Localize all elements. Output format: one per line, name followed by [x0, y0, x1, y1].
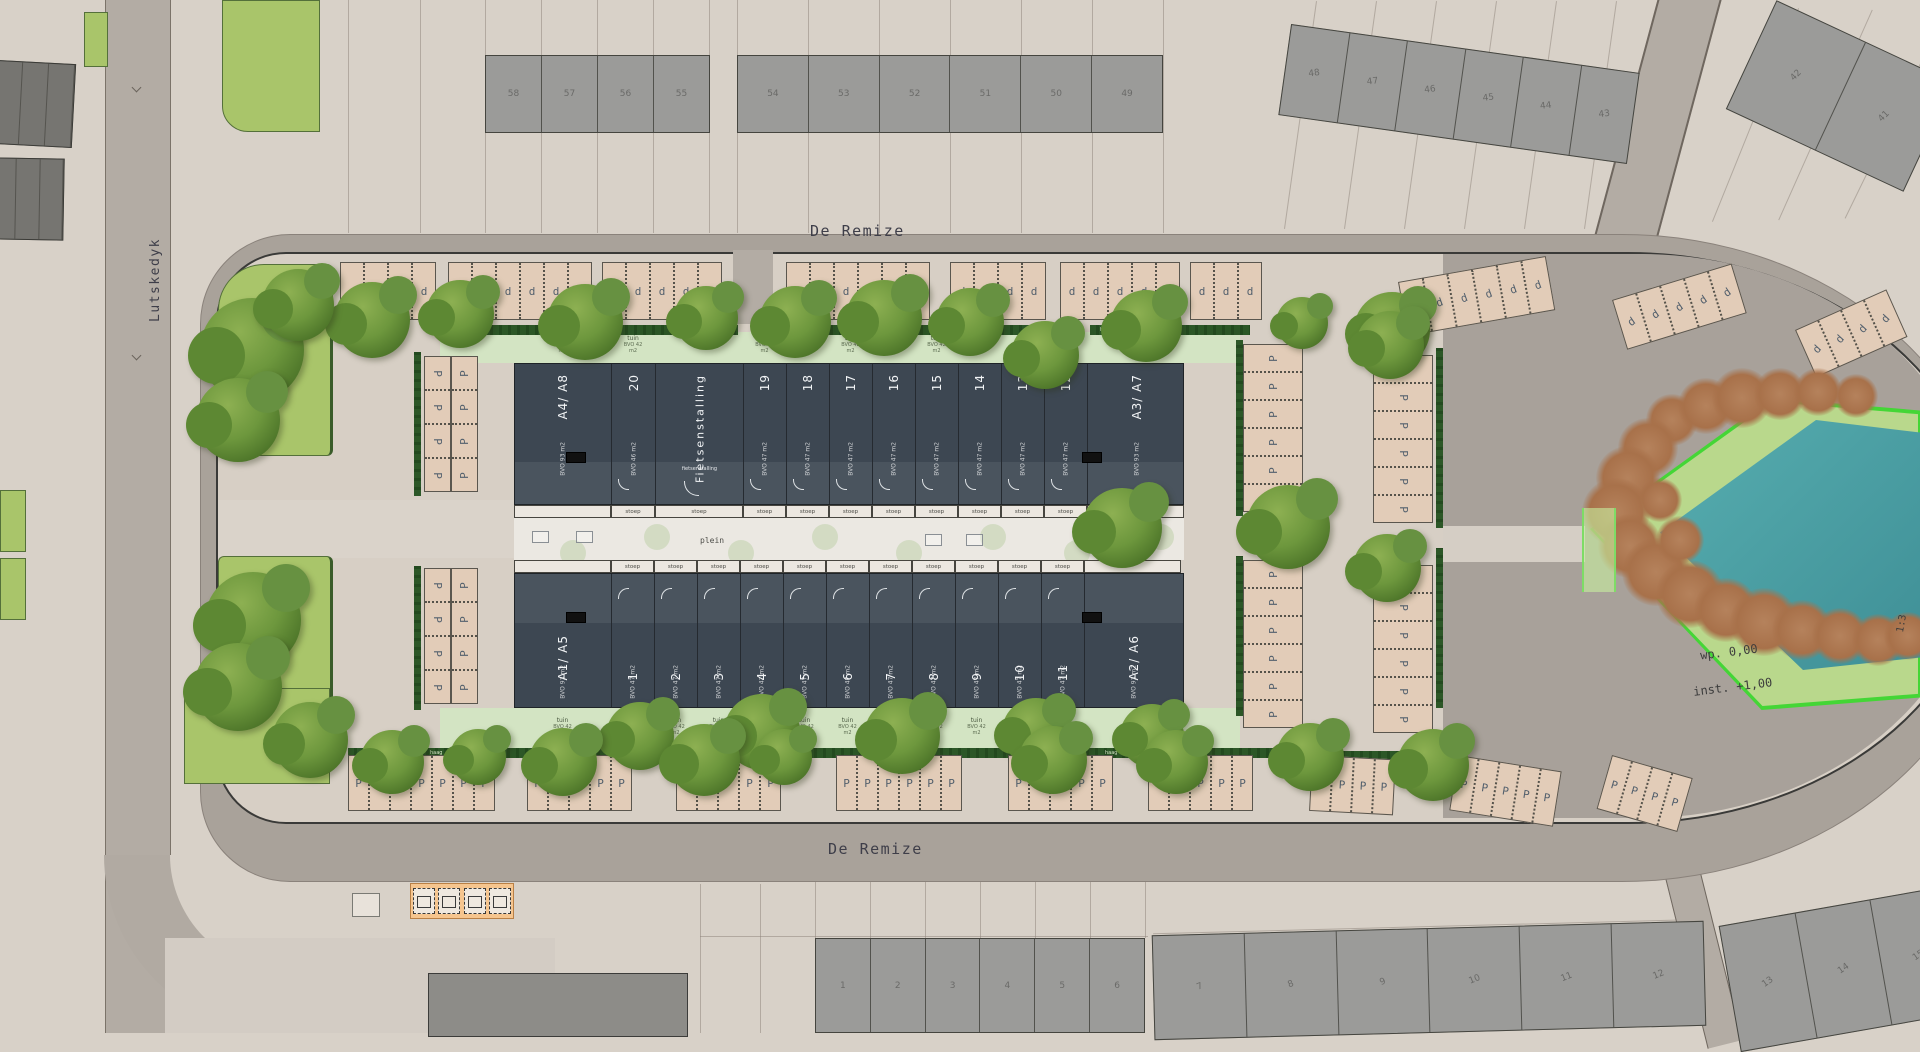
tree-icon [194, 643, 282, 731]
house-cell: 51 [950, 56, 1021, 132]
unit-area-label: BVO 47 m2 [1017, 665, 1024, 699]
house-block: 789101112 [1152, 921, 1707, 1040]
parking-stall: P [452, 391, 477, 425]
unit-area-label: BVO 47 m2 [891, 442, 898, 476]
parking-letter: P [1359, 779, 1366, 792]
stoep-label: stoep [1058, 509, 1073, 515]
building-unit: A1/ A5BVO 93 m2 [515, 574, 612, 707]
building-unit: 18BVO 47 m2 [787, 364, 830, 504]
stoep-label: stoep [754, 564, 769, 570]
stoep-label: stoep [1015, 509, 1030, 515]
container-icon [489, 888, 511, 914]
door-icon [1051, 479, 1062, 490]
door-icon [876, 588, 887, 599]
parking-stall: P [1233, 756, 1252, 810]
stoep-strip: stoepstoepstoepstoepstoepstoepstoepstoep… [514, 560, 1184, 573]
parking-letter: P [1397, 478, 1410, 485]
parking-letter: P [1267, 683, 1280, 690]
picnic-table-icon [532, 531, 549, 543]
house-number: 13 [1760, 975, 1775, 990]
tree-icon [1082, 488, 1162, 568]
parking-letter: P [1397, 688, 1410, 695]
parking-stall: P [452, 459, 477, 491]
unit-area-label: BVO 47 m2 [716, 665, 723, 699]
door-icon [750, 479, 761, 490]
apartment-building: A4/ A8BVO 93 m220BVO 46 m2Fietsenstallin… [514, 363, 1184, 505]
parking-letter: P [431, 650, 444, 657]
tree-icon [1356, 311, 1424, 379]
parking-stall: P [425, 637, 450, 671]
parking-stall: d [1191, 263, 1215, 319]
building-unit: A4/ A8BVO 93 m2 [515, 364, 612, 504]
tree-icon [1144, 730, 1208, 794]
stoep-label: stoep [625, 509, 640, 515]
stoep-label: stoep [757, 509, 772, 515]
bike-storage-small-label: fietsenstalling [682, 466, 717, 472]
parking-group: ddd [1190, 262, 1262, 320]
house-block: 545352515049 [737, 55, 1163, 133]
stoep-cell: stoep [697, 560, 740, 573]
parking-stall: P [1244, 429, 1302, 457]
parking-letter: P [1480, 781, 1489, 795]
tuin-label: tuinBVO 42 m2 [963, 718, 991, 736]
stoep-label: stoep [797, 564, 812, 570]
house-number: 43 [1598, 109, 1611, 120]
house-cell: 55 [654, 56, 709, 132]
parking-letter: P [597, 777, 604, 790]
house-number: 9 [1379, 976, 1388, 987]
tree-icon [846, 280, 922, 356]
parking-letter: P [864, 777, 871, 790]
reed-icon [1834, 374, 1878, 418]
stoep-cell [514, 505, 611, 518]
door-icon [1008, 479, 1019, 490]
parking-letter: P [431, 370, 444, 377]
house-number: 49 [1121, 89, 1132, 99]
green-block-top [222, 0, 320, 132]
picnic-table-icon [925, 534, 942, 546]
stair-icon [1082, 452, 1102, 463]
parking-letter: P [1338, 778, 1345, 791]
parking-letter: P [458, 370, 471, 377]
building-unit: 1BVO 47 m2 [612, 574, 655, 707]
tree-icon [1276, 297, 1328, 349]
parking-stall: P [425, 425, 450, 459]
plot-line [1145, 880, 1146, 938]
door-icon [618, 588, 629, 599]
house-cell: 53 [809, 56, 880, 132]
building-unit: 7BVO 47 m2 [870, 574, 913, 707]
unit-label: 19 [758, 374, 772, 391]
house-cell: 5 [1035, 939, 1090, 1032]
existing-building-south [428, 973, 688, 1037]
parking-letter: d [635, 285, 642, 298]
street-label-bottom: De Remize [828, 840, 923, 858]
door-icon [836, 479, 847, 490]
stoep-cell: stoep [869, 560, 912, 573]
utility-pad [352, 893, 380, 917]
stoep-label: stoep [668, 564, 683, 570]
planter-circle [644, 524, 670, 550]
unit-area-label: BVO 47 m2 [762, 442, 769, 476]
door-icon [962, 588, 973, 599]
tuin-label: tuinBVO 42 m2 [619, 336, 647, 354]
house-block: 58575655 [485, 55, 710, 133]
parking-letter: d [1721, 285, 1734, 299]
tree-icon [1353, 534, 1421, 602]
parking-stall: P [1374, 650, 1432, 678]
stoep-cell: stoep [1001, 505, 1044, 518]
parking-stall: P [452, 425, 477, 459]
unit-area-label: BVO 46 m2 [630, 442, 637, 476]
stoep-label: stoep [840, 564, 855, 570]
unit-label: 20 [627, 374, 641, 391]
house-cell: 54 [738, 56, 809, 132]
parking-stall: P [425, 569, 450, 603]
parking-stall: d [1239, 263, 1261, 319]
house-number: 51 [980, 89, 991, 99]
building-unit: 2BVO 47 m2 [655, 574, 698, 707]
tree-icon [1011, 321, 1079, 389]
parking-letter: d [1117, 285, 1124, 298]
parking-stall: P [1374, 412, 1432, 440]
house-number: 54 [767, 89, 778, 99]
tree-icon [864, 698, 940, 774]
unit-label: 16 [887, 374, 901, 391]
unit-area-label: BVO 93 m2 [1130, 665, 1137, 699]
house-number: 48 [1308, 68, 1321, 79]
house-cell: 8 [1245, 931, 1339, 1036]
stoep-label: stoep [929, 509, 944, 515]
tree-icon [759, 286, 831, 358]
parking-letter: P [431, 438, 444, 445]
house-cell: 58 [486, 56, 542, 132]
building-unit: 9BVO 47 m2 [956, 574, 999, 707]
parking-letter: P [458, 404, 471, 411]
parking-stall: P [1244, 457, 1302, 485]
parking-letter: P [1397, 394, 1410, 401]
stoep-cell: stoep [872, 505, 915, 518]
parking-letter: P [458, 650, 471, 657]
door-icon [793, 479, 804, 490]
parking-letter: d [843, 285, 850, 298]
stoep-label: stoep [625, 564, 640, 570]
building-unit: 19BVO 47 m2 [744, 364, 787, 504]
stoep-label: stoep [843, 509, 858, 515]
stoep-cell: stoep [1041, 560, 1084, 573]
parking-column: PPPP [451, 568, 478, 704]
green-strip [84, 12, 108, 67]
unit-label: A3/ A7 [1130, 374, 1144, 420]
courtyard-label: plein [700, 536, 724, 545]
parking-letter: P [927, 777, 934, 790]
tree-icon [1397, 729, 1469, 801]
tree-icon [547, 284, 623, 360]
house-cell: 10 [1428, 927, 1522, 1032]
unit-area-label: BVO 47 m2 [630, 665, 637, 699]
parking-letter: P [885, 777, 892, 790]
house-number: 56 [620, 89, 631, 99]
parking-letter: P [431, 684, 444, 691]
stoep-label: stoep [972, 509, 987, 515]
parking-letter: d [1069, 285, 1076, 298]
parking-column: PPPP [424, 568, 451, 704]
parking-letter: P [1397, 632, 1410, 639]
unit-area-label: BVO 47 m2 [805, 442, 812, 476]
door-icon [922, 479, 933, 490]
parking-letter: d [1223, 285, 1230, 298]
parking-letter: d [1533, 278, 1544, 292]
parking-letter: P [1397, 506, 1410, 513]
parking-letter: d [1093, 285, 1100, 298]
house-number: 8 [1287, 978, 1296, 989]
house-number: 45 [1482, 92, 1495, 103]
house-block: 123456 [815, 938, 1145, 1033]
tree-icon [334, 282, 410, 358]
house-number: 55 [676, 89, 687, 99]
stoep-cell: stoep [783, 560, 826, 573]
stoep-label: stoep [883, 564, 898, 570]
tree-icon [936, 288, 1004, 356]
stoep-cell: stoep [786, 505, 829, 518]
tree-icon [756, 729, 812, 785]
unit-area-label: BVO 93 m2 [560, 665, 567, 699]
house-cell: 1 [816, 939, 871, 1032]
green-strip [0, 558, 26, 620]
parking-stall: P [452, 569, 477, 603]
planter-circle [980, 524, 1006, 550]
parking-stall: P [1093, 756, 1112, 810]
parking-letter: P [1380, 780, 1387, 793]
house-block: 131415 [1719, 886, 1920, 1052]
parking-column: PPPP [451, 356, 478, 492]
parking-letter: P [458, 616, 471, 623]
parking-stall: d [521, 263, 545, 319]
house-number: 41 [1877, 109, 1892, 124]
parking-stall: P [452, 357, 477, 391]
plot-line [1163, 0, 1164, 233]
parking-stall: P [1244, 373, 1302, 401]
house-cell: 6 [1090, 939, 1144, 1032]
house-number: 44 [1540, 101, 1553, 112]
pedestrian-crossing [1443, 526, 1585, 562]
plot-line [420, 0, 421, 233]
plot-line [700, 884, 701, 1033]
house-number: 4 [1005, 981, 1011, 991]
parking-letter: P [1397, 660, 1410, 667]
waste-containers [410, 883, 514, 919]
house-number: 1 [840, 981, 846, 991]
unit-area-label: BVO 47 m2 [1020, 442, 1027, 476]
container-icon [464, 888, 486, 914]
house-number: 47 [1366, 76, 1379, 87]
door-icon [684, 481, 699, 496]
parking-letter: P [1397, 716, 1410, 723]
door-icon [1005, 588, 1016, 599]
door-icon [833, 588, 844, 599]
door-icon [879, 479, 890, 490]
parking-letter: P [1267, 655, 1280, 662]
unit-area-label: BVO 47 m2 [888, 665, 895, 699]
building-unit: 15BVO 47 m2 [916, 364, 959, 504]
parking-letter: P [458, 472, 471, 479]
parking-letter: d [505, 285, 512, 298]
parking-letter: P [1099, 777, 1106, 790]
parking-letter: d [1833, 332, 1847, 346]
parking-stall: P [837, 756, 858, 810]
tree-icon [272, 702, 348, 778]
tuin-area-text: BVO 42 m2 [619, 343, 647, 355]
house-number: 10 [1468, 973, 1482, 987]
house-cell: 3 [926, 939, 981, 1032]
stoep-cell: stoep [740, 560, 783, 573]
parking-letter: P [1267, 571, 1280, 578]
building-unit: 17BVO 47 m2 [830, 364, 873, 504]
tree-icon [1110, 290, 1182, 362]
stoep-cell: stoep [958, 505, 1001, 518]
house-number: 58 [508, 89, 519, 99]
parking-letter: d [1459, 291, 1470, 305]
crossing-highlight [1582, 508, 1616, 592]
house-number: 12 [1651, 968, 1665, 982]
stoep-cell: stoep [826, 560, 869, 573]
parking-letter: d [1199, 285, 1206, 298]
building-unit: A2/ A6BVO 93 m2 [1085, 574, 1182, 707]
unit-label: 14 [973, 374, 987, 391]
door-icon [661, 588, 672, 599]
building-unit: 14BVO 47 m2 [959, 364, 1002, 504]
parking-letter: P [431, 582, 444, 589]
site-plan: De Remize De Remize Lutskedyk plein haag… [0, 0, 1920, 1033]
building-unit: A3/ A7BVO 93 m2 [1088, 364, 1185, 504]
parking-letter: d [1508, 282, 1519, 296]
parking-stall: P [1244, 617, 1302, 645]
building-unit: 20BVO 46 m2 [612, 364, 656, 504]
parking-stall: P [1244, 645, 1302, 673]
plot-line [925, 880, 926, 938]
house-number: 42 [1788, 68, 1803, 83]
tree-icon [1276, 723, 1344, 791]
unit-label: 15 [930, 374, 944, 391]
tree-icon [426, 280, 494, 348]
parking-stall: P [452, 603, 477, 637]
picnic-table-icon [966, 534, 983, 546]
parking-stall: P [425, 671, 450, 703]
house-number: 50 [1051, 89, 1062, 99]
house-cell: 11 [1520, 924, 1614, 1029]
parking-letter: P [458, 684, 471, 691]
house-number: 7 [1195, 981, 1204, 992]
parking-stall: P [452, 637, 477, 671]
parking-stall: P [1244, 673, 1302, 701]
house-number: 53 [838, 89, 849, 99]
stoep-cell [514, 560, 611, 573]
parking-letter: d [421, 285, 428, 298]
parking-stall: d [1061, 263, 1085, 319]
house-block: 4241 [1726, 0, 1920, 192]
house-cell: 52 [880, 56, 951, 132]
stoep-cell: stoep [654, 560, 697, 573]
door-icon [747, 588, 758, 599]
stoep-cell: stoep [912, 560, 955, 573]
parking-letter: P [1630, 783, 1640, 797]
unit-label: 18 [801, 374, 815, 391]
plot-line [700, 936, 1148, 937]
parking-stall: P [452, 671, 477, 703]
house-number: 14 [1836, 962, 1851, 977]
plot-line [1035, 880, 1036, 938]
parking-letter: P [1397, 604, 1410, 611]
parking-letter: d [1856, 322, 1870, 336]
house-number: 57 [564, 89, 575, 99]
parking-letter: P [1267, 599, 1280, 606]
building-unit: 6BVO 47 m2 [827, 574, 870, 707]
house-number: 46 [1424, 84, 1437, 95]
parking-letter: d [1878, 311, 1892, 325]
door-icon [790, 588, 801, 599]
parking-letter: d [529, 285, 536, 298]
parking-letter: d [1673, 299, 1686, 313]
stoep-cell: stoep [955, 560, 998, 573]
parking-column: PPPPPP [1243, 560, 1303, 728]
parking-letter: P [439, 777, 446, 790]
parking-letter: P [458, 582, 471, 589]
access-lane [218, 500, 518, 558]
stoep-label: stoep [711, 564, 726, 570]
tree-icon [529, 728, 597, 796]
hedge [1436, 548, 1443, 708]
stoep-cell: stoep [611, 560, 654, 573]
unit-label: 17 [844, 374, 858, 391]
unit-area-label: BVO 47 m2 [845, 665, 852, 699]
parking-stall: P [425, 357, 450, 391]
house-cell: 12 [1612, 922, 1705, 1027]
parking-stall: P [1244, 401, 1302, 429]
building-unit: 10BVO 47 m2 [999, 574, 1042, 707]
parking-stall: P [1244, 589, 1302, 617]
parking-stall: P [1352, 758, 1376, 813]
parking-stall: P [1244, 701, 1302, 727]
parking-letter: P [1267, 383, 1280, 390]
parking-stall: d [497, 263, 521, 319]
parking-letter: P [1397, 450, 1410, 457]
parking-stall: P [1374, 496, 1432, 522]
house-number: 3 [950, 981, 956, 991]
parking-letter: d [1649, 307, 1662, 321]
house-cell: 56 [598, 56, 654, 132]
parking-letter: d [1484, 287, 1495, 301]
parking-letter: P [431, 404, 444, 411]
parking-letter: P [906, 777, 913, 790]
parking-letter: P [1267, 355, 1280, 362]
tree-icon [262, 269, 334, 341]
parking-letter: P [1267, 627, 1280, 634]
tree-icon [450, 729, 506, 785]
parking-stall: P [1374, 622, 1432, 650]
house-number: 52 [909, 89, 920, 99]
unit-area-label: BVO 47 m2 [974, 665, 981, 699]
stoep-cell: stoep [829, 505, 872, 518]
parking-stall: P [1374, 384, 1432, 412]
tree-icon [1246, 485, 1330, 569]
tree-icon [196, 378, 280, 462]
stoep-label: stoep [691, 509, 706, 515]
building-unit: 5BVO 47 m2 [784, 574, 827, 707]
picnic-table-icon [576, 531, 593, 543]
parking-letter: d [659, 285, 666, 298]
house-cell: 7 [1153, 934, 1247, 1039]
door-icon [618, 479, 629, 490]
